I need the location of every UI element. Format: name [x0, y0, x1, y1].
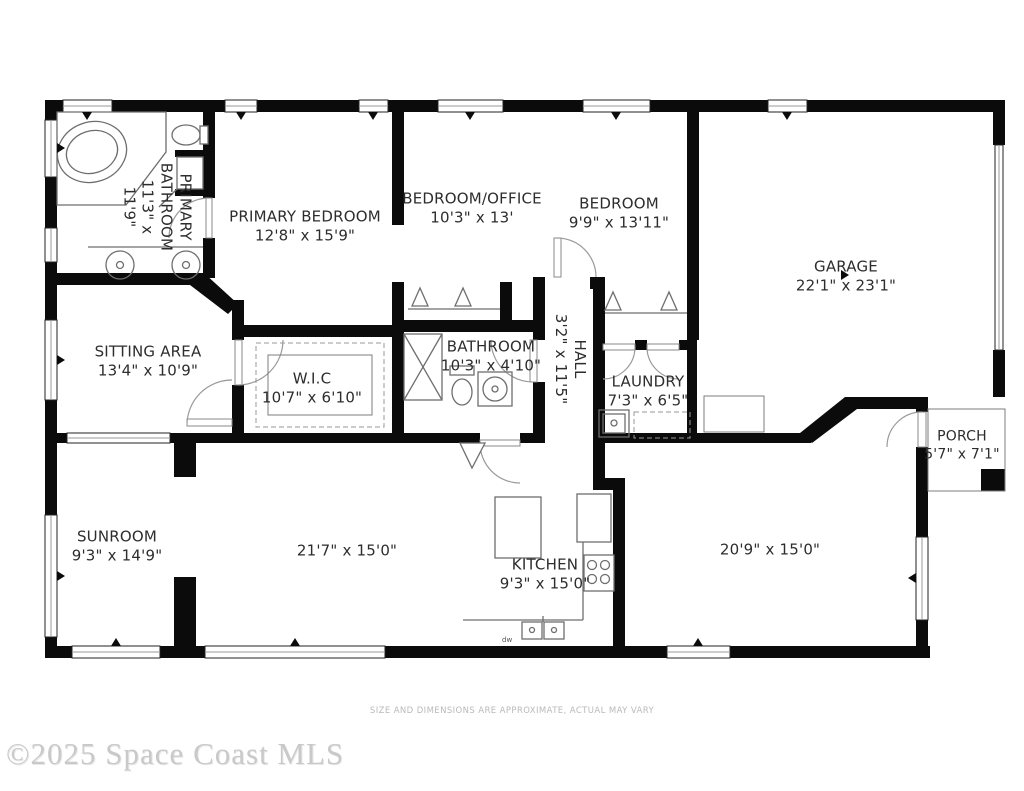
room-label-bedroom-office: BEDROOM/OFFICE10'3" x 13' — [402, 189, 542, 227]
kitchen-island — [495, 497, 541, 558]
room-label-primary-bathroom: PRIMARY BATHROOM11'3" x 11'9" — [120, 157, 195, 257]
kitchen-entry-door — [480, 440, 520, 446]
primary-bath-door — [206, 198, 212, 238]
hanger-icon — [412, 288, 428, 306]
sink-icon — [478, 372, 512, 406]
room-label-bathroom: BATHROOM10'3" x 4'10" — [441, 337, 541, 375]
wic-door — [235, 340, 242, 385]
toilet-icon — [172, 125, 208, 145]
mls-watermark: ©2025 Space Coast MLS — [6, 736, 344, 772]
floorplan-image: .w{fill:#0b0b0b;stroke:none;} .win{fill:… — [0, 0, 1024, 791]
hanger-icon — [455, 288, 471, 306]
dishwasher-label: dw — [502, 636, 512, 644]
fridge-icon — [577, 494, 611, 542]
room-label-family-room: 20'9" x 15'0" — [720, 541, 820, 560]
room-label-wic: W.I.C10'7" x 6'10" — [262, 369, 362, 407]
laundry-door-right — [647, 344, 679, 350]
garage-door — [995, 145, 1003, 350]
size-disclaimer: SIZE AND DIMENSIONS ARE APPROXIMATE, ACT… — [262, 706, 762, 716]
room-label-hall: HALL3'2" x 11'5" — [551, 314, 589, 405]
bedroom-door — [554, 238, 561, 277]
utility-nook — [704, 396, 764, 432]
hanger-icon — [661, 292, 677, 310]
laundry-door-left — [603, 344, 635, 350]
sitting-door — [187, 419, 232, 426]
room-label-porch: PORCH5'7" x 7'1" — [924, 429, 1000, 464]
laundry-sink-icon — [599, 410, 629, 437]
room-label-laundry: LAUNDRY7'3" x 6'5" — [608, 372, 689, 410]
room-label-sitting-area: SITTING AREA13'4" x 10'9" — [95, 342, 202, 380]
room-label-bedroom: BEDROOM9'9" x 13'11" — [569, 194, 669, 232]
room-label-kitchen: KITCHEN9'3" x 15'0" — [500, 555, 591, 593]
room-label-sunroom: SUNROOM9'3" x 14'9" — [72, 527, 163, 565]
room-label-primary-bedroom: PRIMARY BEDROOM12'8" x 15'9" — [229, 207, 381, 245]
room-label-living-area: 21'7" x 15'0" — [297, 542, 397, 561]
floorplan-drawing: .w{fill:#0b0b0b;stroke:none;} .win{fill:… — [0, 0, 1024, 791]
hanger-icon — [605, 292, 621, 310]
room-label-garage: GARAGE22'1" x 23'1" — [796, 257, 896, 295]
